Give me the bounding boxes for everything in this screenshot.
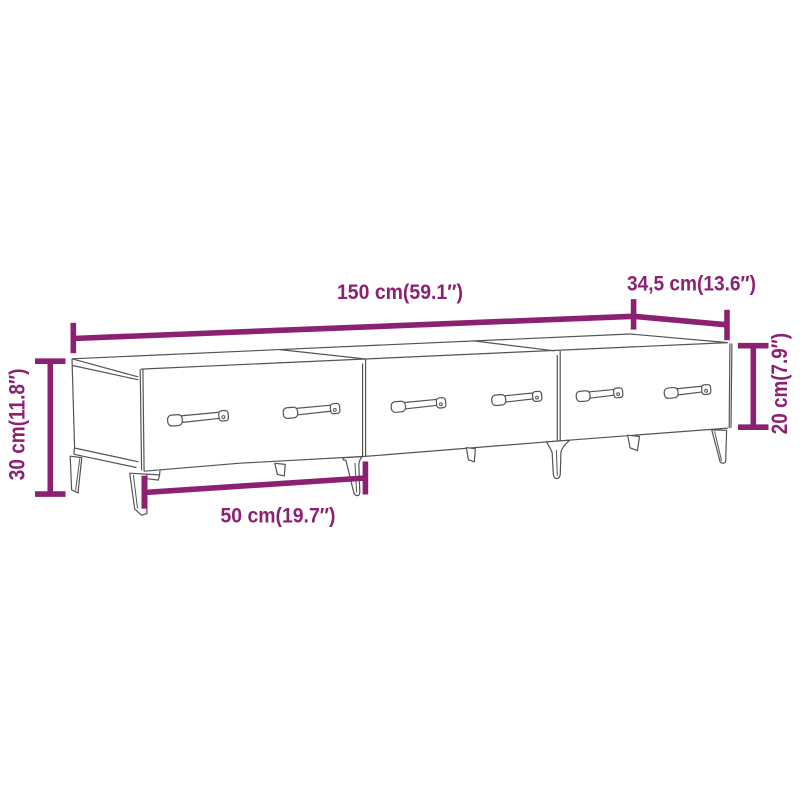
svg-text:50 cm(19.7″): 50 cm(19.7″) xyxy=(221,505,336,528)
svg-text:150 cm(59.1″): 150 cm(59.1″) xyxy=(337,281,463,304)
svg-text:20 cm(7.9″): 20 cm(7.9″) xyxy=(767,333,792,434)
svg-text:30 cm(11.8″): 30 cm(11.8″) xyxy=(5,369,30,481)
svg-text:34,5 cm(13.6″): 34,5 cm(13.6″) xyxy=(627,273,756,296)
